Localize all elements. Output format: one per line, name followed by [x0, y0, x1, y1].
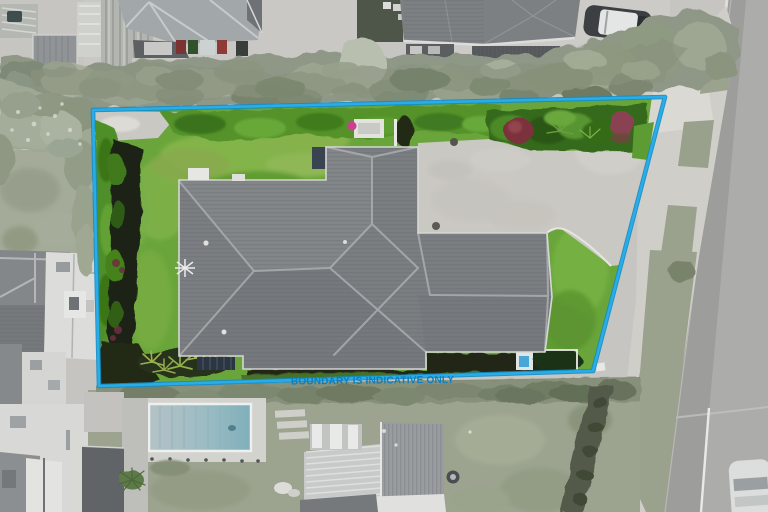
svg-text:BOUNDARY IS INDICATIVE ONLY: BOUNDARY IS INDICATIVE ONLY: [291, 375, 454, 388]
